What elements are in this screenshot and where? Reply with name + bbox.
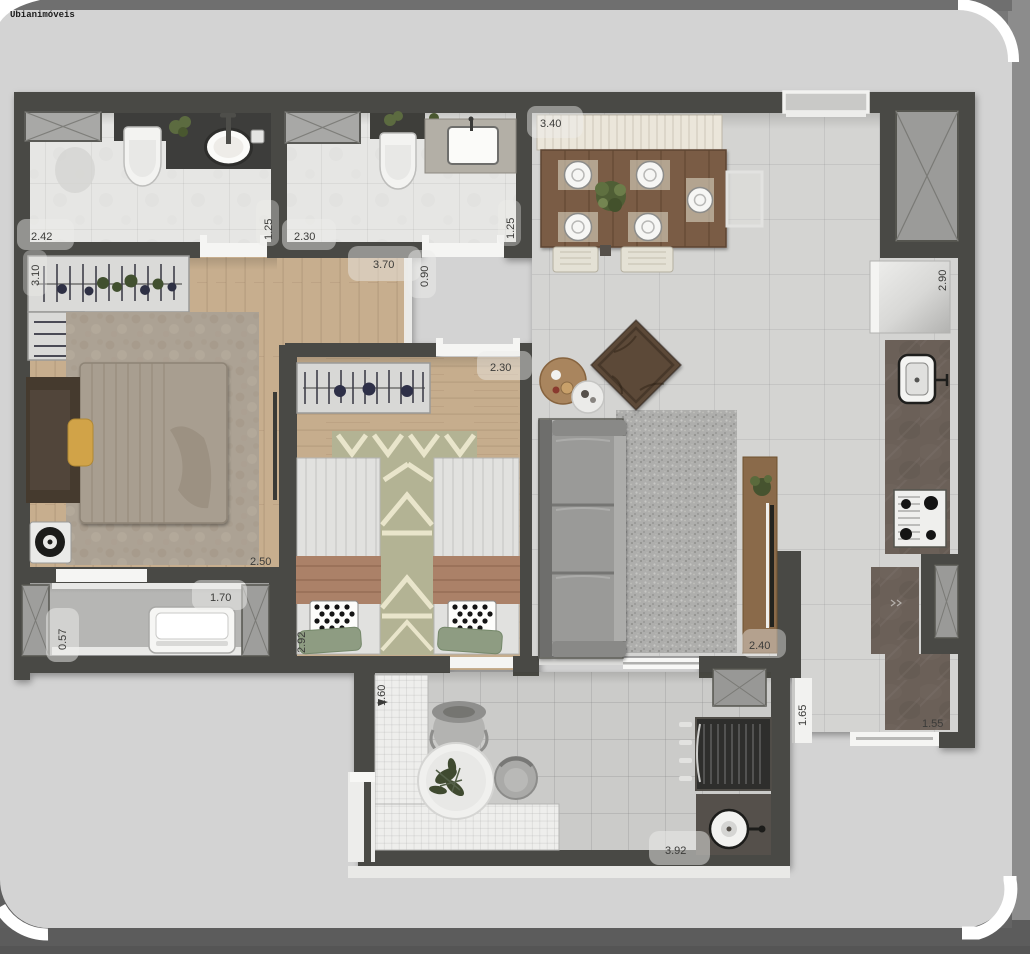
svg-text:1.55: 1.55 (922, 718, 943, 730)
svg-text:3.40: 3.40 (540, 118, 561, 130)
svg-text:2.42: 2.42 (31, 231, 52, 243)
svg-text:2.92: 2.92 (296, 632, 308, 653)
svg-text:3.92: 3.92 (665, 845, 686, 857)
svg-text:1.65: 1.65 (797, 705, 809, 726)
svg-text:2.30: 2.30 (294, 231, 315, 243)
svg-text:1.25: 1.25 (505, 218, 517, 239)
svg-text:2.40: 2.40 (749, 640, 770, 652)
svg-text:2.30: 2.30 (490, 362, 511, 374)
svg-text:1.25: 1.25 (263, 219, 275, 240)
svg-text:2.90: 2.90 (937, 270, 949, 291)
svg-text:3.10: 3.10 (30, 265, 42, 286)
svg-text:2.50: 2.50 (250, 556, 271, 568)
svg-text:0.57: 0.57 (57, 629, 69, 650)
svg-text:1.70: 1.70 (210, 592, 231, 604)
svg-text:0.90: 0.90 (419, 266, 431, 287)
svg-text:3.70: 3.70 (373, 259, 394, 271)
svg-text:Ubianimóveis: Ubianimóveis (10, 10, 75, 20)
